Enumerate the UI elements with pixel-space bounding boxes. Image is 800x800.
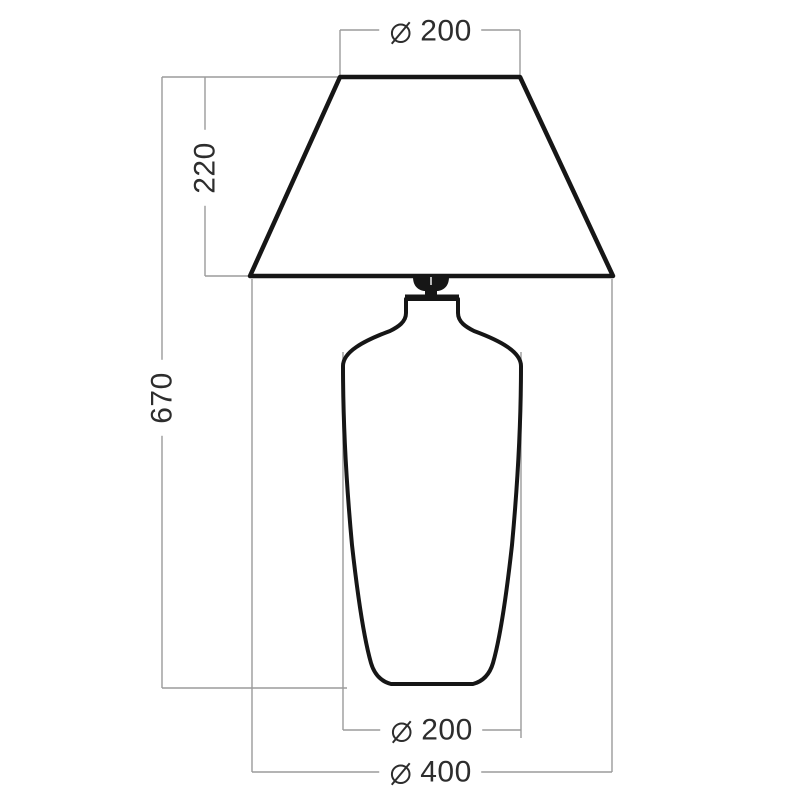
diameter-icon: [389, 718, 414, 745]
label-shade-bottom-diameter: 400: [379, 756, 481, 788]
label-total-height: 670: [146, 360, 178, 436]
dimension-value: 670: [146, 372, 178, 424]
dimension-value: 220: [189, 142, 221, 194]
dimension-value: 400: [420, 756, 472, 788]
label-shade-height: 220: [189, 130, 221, 206]
lamp-body-vase: [343, 299, 521, 684]
dimension-value: 200: [420, 15, 472, 47]
label-body-diameter: 200: [380, 714, 482, 746]
dimension-value: 200: [421, 714, 473, 746]
diameter-icon: [388, 19, 413, 46]
lamp-group: [250, 77, 613, 684]
label-shade-top-diameter: 200: [379, 15, 481, 47]
diameter-icon: [388, 760, 413, 787]
drawing-canvas: [0, 0, 800, 800]
lamp-dimension-drawing: 200 220 670 200 400: [0, 0, 800, 800]
lamp-shade: [250, 77, 613, 276]
lamp-socket-stem: [425, 290, 437, 295]
